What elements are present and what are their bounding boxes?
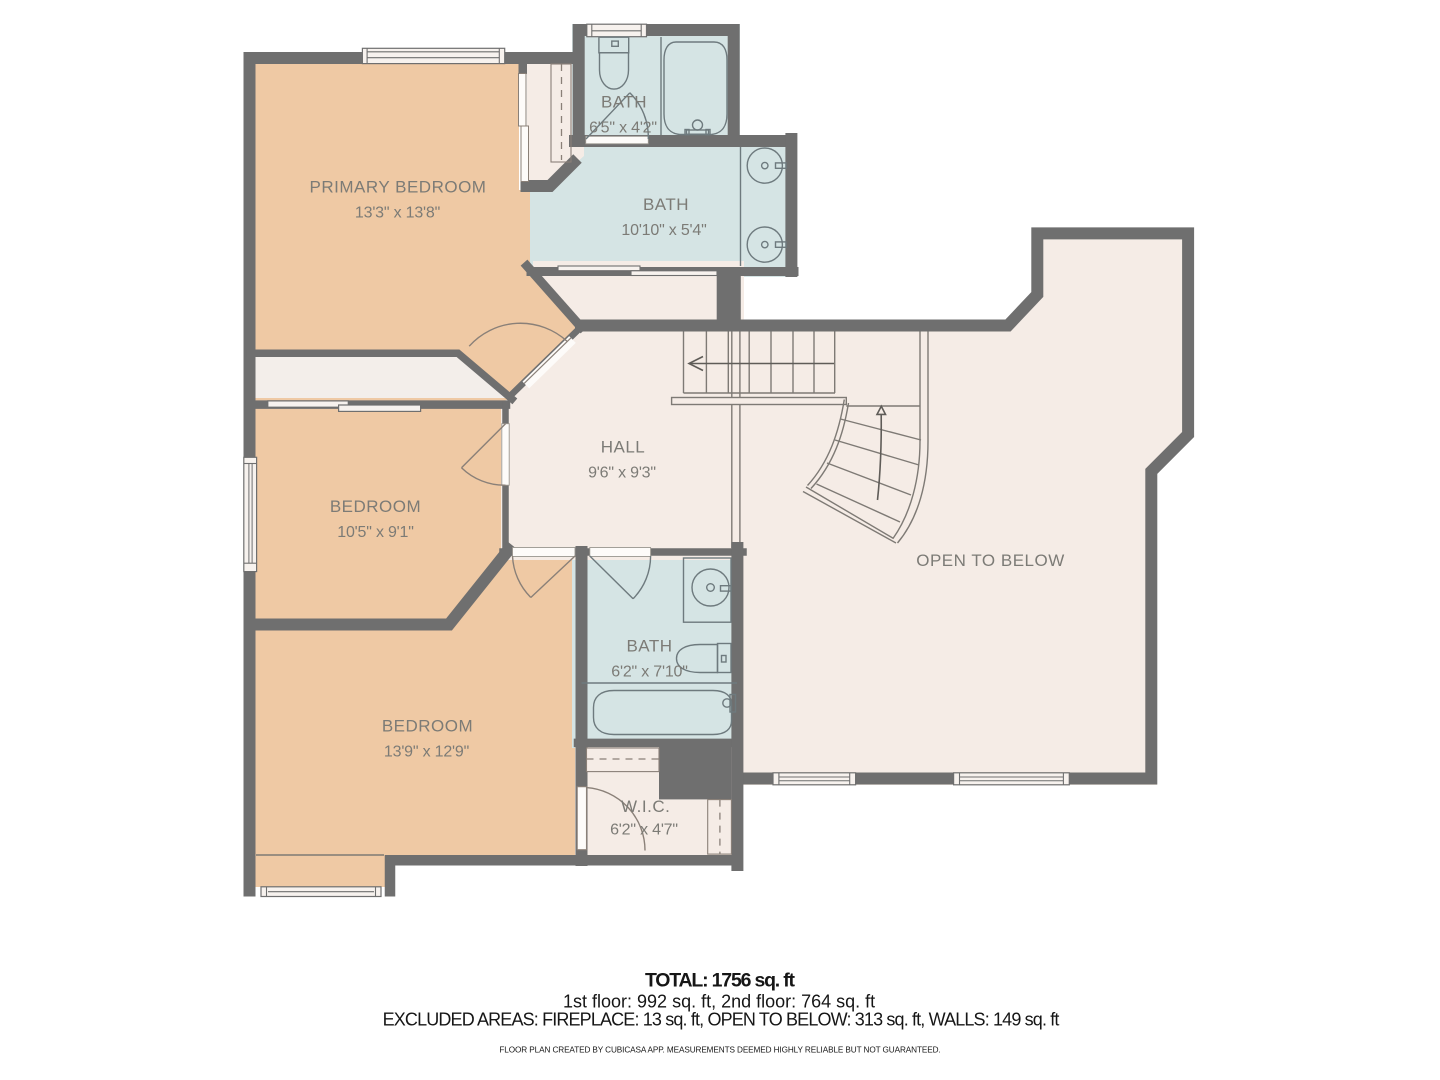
svg-text:1st floor: 992 sq. ft, 2nd flo: 1st floor: 992 sq. ft, 2nd floor: 764 sq… (563, 991, 875, 1011)
svg-text:6'5" x 4'2": 6'5" x 4'2" (589, 120, 657, 137)
svg-text:13'3" x 13'8": 13'3" x 13'8" (355, 204, 440, 221)
svg-text:TOTAL: 1756 sq. ft: TOTAL: 1756 sq. ft (645, 970, 796, 992)
svg-text:6'2" x 7'10": 6'2" x 7'10" (611, 663, 687, 680)
svg-text:10'10" x 5'4": 10'10" x 5'4" (621, 222, 706, 239)
svg-text:EXCLUDED AREAS: FIREPLACE: 13: EXCLUDED AREAS: FIREPLACE: 13 sq. ft, OP… (383, 1010, 1060, 1030)
svg-text:13'9" x 12'9": 13'9" x 12'9" (384, 743, 469, 760)
svg-text:BEDROOM: BEDROOM (330, 497, 421, 516)
svg-text:FLOOR PLAN CREATED BY CUBICASA: FLOOR PLAN CREATED BY CUBICASA APP. MEAS… (499, 1046, 940, 1055)
svg-text:BATH: BATH (601, 93, 647, 112)
svg-text:9'6" x 9'3": 9'6" x 9'3" (588, 464, 656, 481)
svg-text:OPEN TO BELOW: OPEN TO BELOW (916, 551, 1065, 570)
svg-text:PRIMARY BEDROOM: PRIMARY BEDROOM (310, 178, 487, 197)
svg-text:W.I.C.: W.I.C. (621, 797, 670, 816)
svg-text:BATH: BATH (626, 637, 672, 656)
svg-text:BATH: BATH (643, 195, 689, 214)
svg-text:BEDROOM: BEDROOM (382, 717, 473, 736)
svg-text:HALL: HALL (601, 438, 646, 457)
svg-text:6'2" x 4'7": 6'2" x 4'7" (610, 822, 678, 839)
svg-text:10'5" x 9'1": 10'5" x 9'1" (337, 524, 413, 541)
